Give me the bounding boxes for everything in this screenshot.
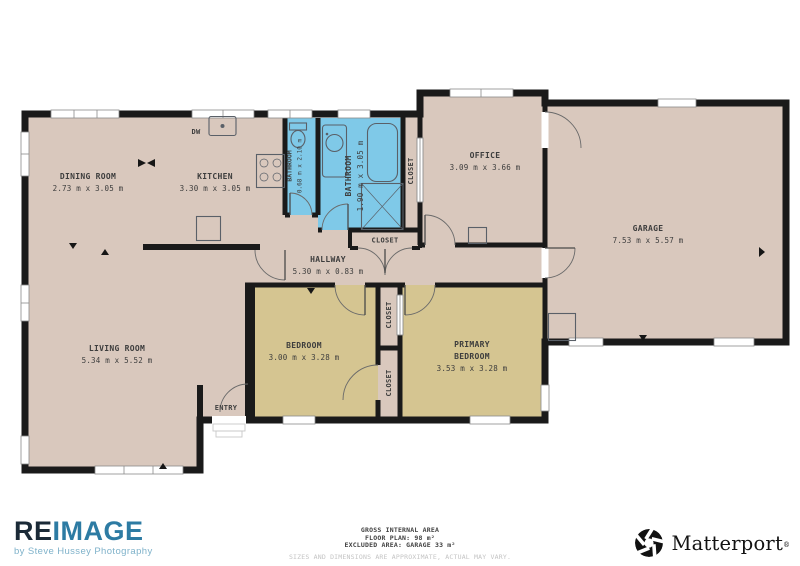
label-bathroom-small: BATHROOM — [286, 150, 294, 181]
label-dishwasher: DW — [191, 128, 201, 136]
dims-garage: 7.53 m x 5.57 m — [613, 236, 684, 245]
room-dining-kitchen — [25, 114, 285, 250]
room-garage — [545, 103, 786, 342]
floor-plan-drawing: DINING ROOM 2.73 m x 3.05 m KITCHEN 3.30… — [0, 0, 800, 512]
dims-office: 3.09 m x 3.66 m — [450, 163, 521, 172]
entry-steps — [213, 424, 245, 431]
floor-plan-page: DINING ROOM 2.73 m x 3.05 m KITCHEN 3.30… — [0, 0, 800, 566]
matterport-registered-mark: ® — [783, 541, 790, 549]
label-bedroom: BEDROOM — [286, 341, 322, 350]
label-closet-upper: CLOSET — [385, 301, 393, 328]
dims-living: 5.34 m x 5.52 m — [82, 356, 153, 365]
dims-primary: 3.53 m x 3.28 m — [437, 364, 508, 373]
dims-dining: 2.73 m x 3.05 m — [53, 184, 124, 193]
label-bathroom-main: BATHROOM — [344, 156, 353, 197]
dims-kitchen: 3.30 m x 3.05 m — [180, 184, 251, 193]
label-closet-office: CLOSET — [407, 157, 415, 184]
label-closet-lower: CLOSET — [385, 369, 393, 396]
office-garage-opening — [542, 112, 549, 148]
matterport-wordmark: Matterport — [671, 532, 783, 555]
room-hallway — [245, 245, 545, 285]
matterport-logo: Matterport® — [634, 528, 790, 558]
label-dining: DINING ROOM — [60, 172, 116, 181]
hall-garage-opening — [542, 248, 549, 278]
matterport-pinwheel-icon — [634, 528, 664, 558]
front-door-opening — [212, 416, 246, 424]
dims-bathroom-main: 1.90 m x 3.05 m — [356, 140, 365, 211]
label-hallway: HALLWAY — [310, 255, 346, 264]
label-garage: GARAGE — [633, 224, 664, 233]
label-closet-hallway: CLOSET — [371, 237, 398, 245]
dims-bedroom: 3.00 m x 3.28 m — [269, 353, 340, 362]
label-entry: ENTRY — [215, 404, 238, 412]
label-primary-1: PRIMARY — [454, 340, 490, 349]
label-office: OFFICE — [470, 151, 501, 160]
label-living: LIVING ROOM — [89, 344, 145, 353]
dims-bathroom-small: 0.68 m x 2.10 m — [297, 139, 304, 194]
label-kitchen: KITCHEN — [197, 172, 233, 181]
dims-hallway: 5.30 m x 0.83 m — [293, 267, 364, 276]
label-primary-2: BEDROOM — [454, 352, 490, 361]
